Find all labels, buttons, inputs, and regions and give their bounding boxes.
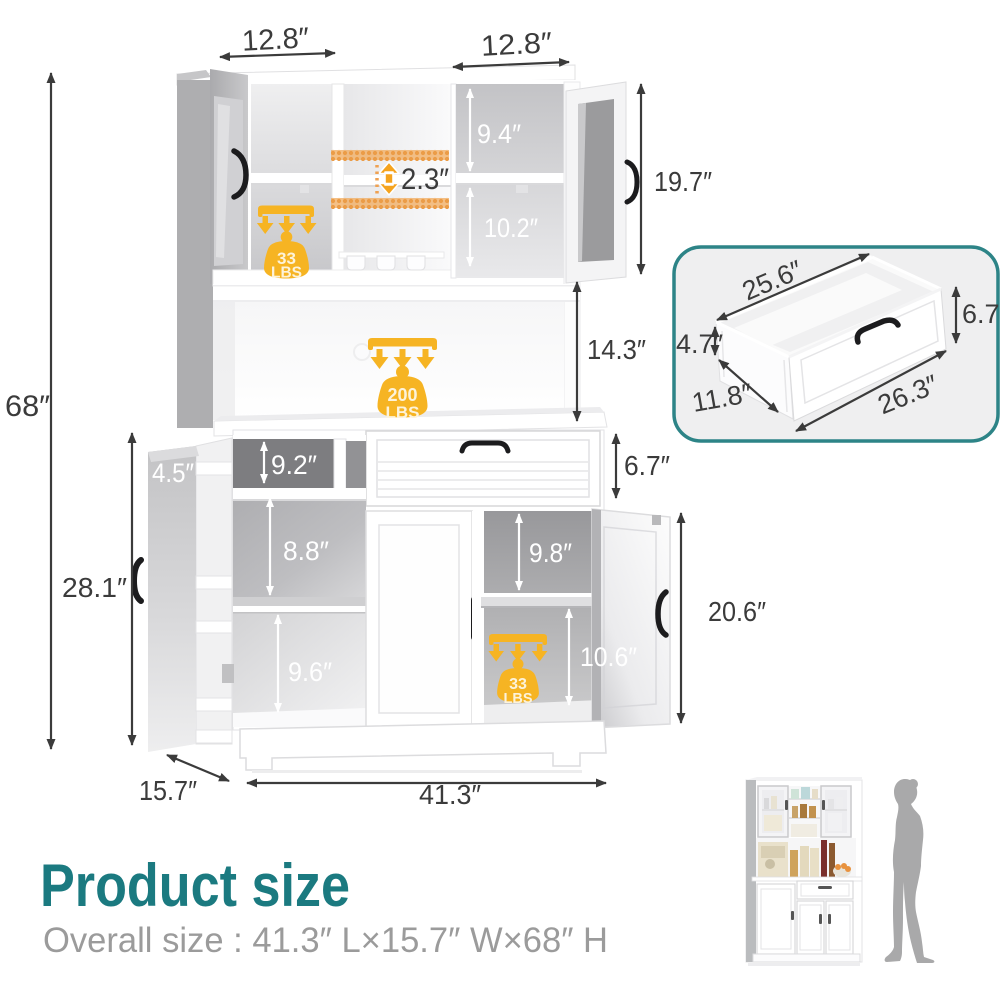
svg-text:28.1″: 28.1″: [62, 572, 127, 603]
svg-text:4.5″: 4.5″: [152, 458, 194, 488]
svg-text:19.7″: 19.7″: [654, 166, 712, 197]
svg-text:68″: 68″: [5, 390, 50, 423]
svg-text:9.8″: 9.8″: [529, 538, 572, 568]
svg-text:9.2″: 9.2″: [271, 450, 317, 480]
svg-text:LBS: LBS: [271, 265, 302, 282]
svg-text:4.7″: 4.7″: [676, 329, 724, 359]
svg-text:Overall size : 41.3″ L×15.7″ W: Overall size : 41.3″ L×15.7″ W×68″ H: [43, 921, 608, 960]
svg-text:6.7″: 6.7″: [962, 299, 1000, 329]
svg-text:12.8″: 12.8″: [480, 27, 553, 63]
svg-text:41.3″: 41.3″: [419, 779, 481, 810]
svg-text:2.3″: 2.3″: [401, 163, 449, 196]
svg-text:8.8″: 8.8″: [283, 536, 329, 566]
svg-text:14.3″: 14.3″: [587, 334, 646, 365]
svg-text:10.2″: 10.2″: [484, 213, 538, 243]
svg-text:9.4″: 9.4″: [477, 119, 521, 149]
svg-text:LBS: LBS: [386, 403, 420, 422]
svg-text:10.6″: 10.6″: [580, 642, 637, 672]
svg-text:200: 200: [387, 385, 417, 405]
svg-text:15.7″: 15.7″: [139, 775, 197, 806]
svg-text:20.6″: 20.6″: [708, 596, 766, 627]
svg-text:9.6″: 9.6″: [288, 657, 332, 687]
svg-text:Product size: Product size: [40, 852, 350, 919]
svg-text:6.7″: 6.7″: [624, 450, 670, 481]
svg-text:LBS: LBS: [504, 691, 533, 707]
svg-text:12.8″: 12.8″: [241, 22, 310, 57]
